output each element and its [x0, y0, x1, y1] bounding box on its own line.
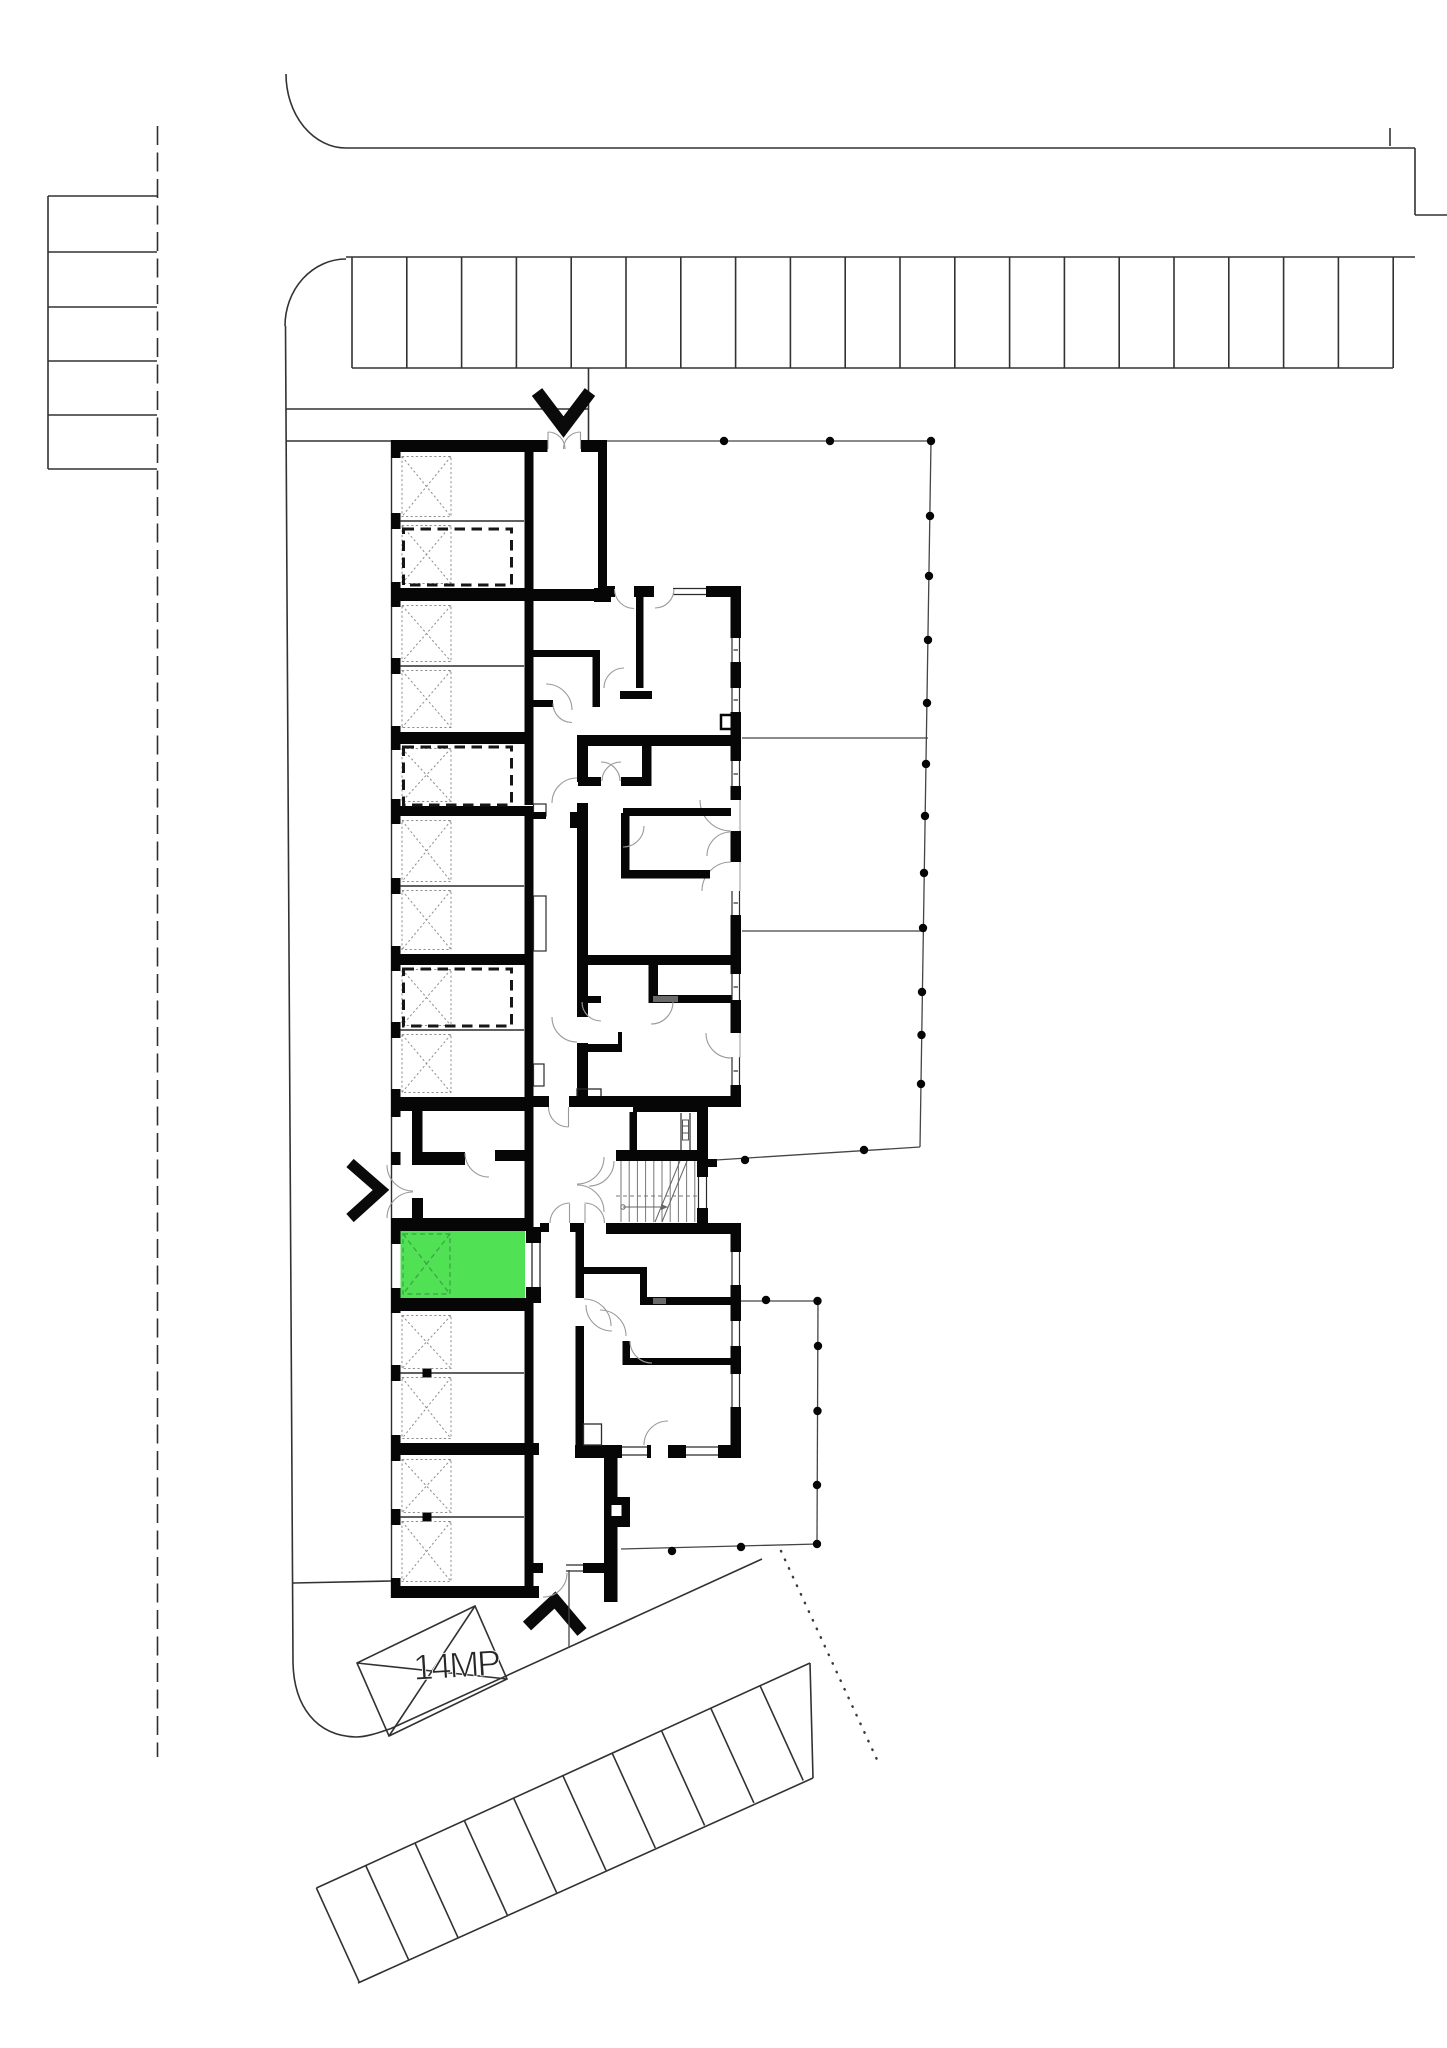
svg-text:14MP: 14MP: [412, 1642, 501, 1688]
